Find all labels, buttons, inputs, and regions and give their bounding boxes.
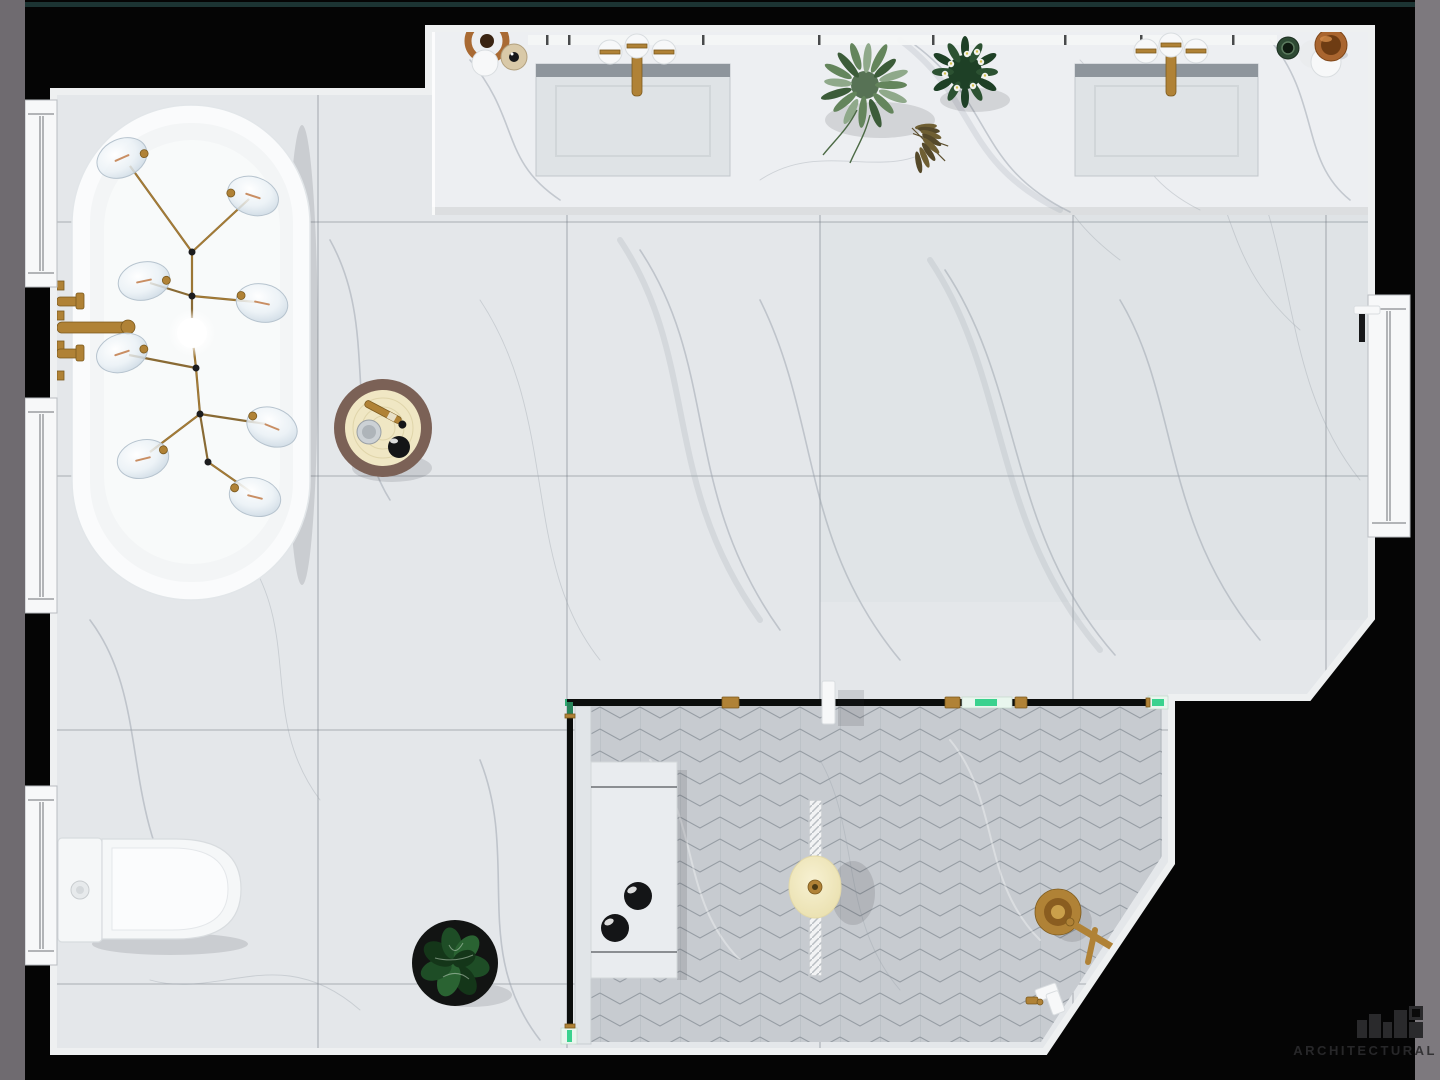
bathroom-render bbox=[0, 0, 1440, 1080]
glass-clamp bbox=[722, 697, 739, 708]
side-table bbox=[334, 379, 432, 477]
page-frame-right bbox=[1415, 0, 1440, 1080]
toilet bbox=[58, 838, 241, 942]
watermark: ARCHITECTURAL bbox=[1293, 1006, 1437, 1058]
watermark-text: ARCHITECTURAL bbox=[1293, 1043, 1437, 1058]
window-right bbox=[1368, 295, 1410, 537]
window-left-bottom bbox=[25, 786, 57, 965]
floor-plant-monstera bbox=[412, 920, 498, 1006]
glass-clamp bbox=[945, 697, 960, 708]
shower-wall-panel bbox=[575, 706, 591, 1044]
window-left-top bbox=[25, 100, 57, 287]
render-canvas: ARCHITECTURAL bbox=[0, 0, 1440, 1080]
window-left-middle bbox=[25, 398, 57, 613]
shower-bottle bbox=[601, 914, 629, 942]
page-frame-left bbox=[0, 0, 25, 1080]
shower-bench bbox=[591, 762, 677, 978]
watermark-logo-icon bbox=[1355, 1006, 1427, 1040]
shower-bottle bbox=[624, 882, 652, 910]
shower-door-handle bbox=[822, 681, 835, 724]
